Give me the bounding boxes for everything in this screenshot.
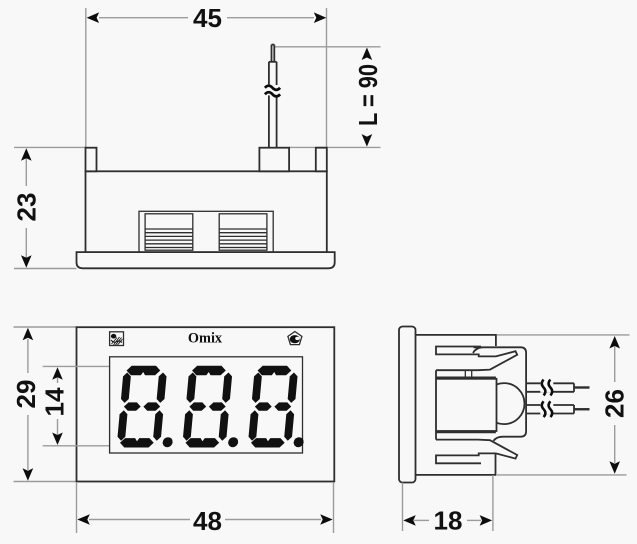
svg-text:14: 14: [40, 387, 70, 416]
svg-text:L = 90: L = 90: [353, 64, 383, 126]
svg-text:18: 18: [434, 506, 463, 536]
svg-text:48: 48: [193, 506, 222, 536]
svg-text:Omix: Omix: [188, 330, 223, 346]
svg-text:29: 29: [11, 380, 41, 409]
svg-text:23: 23: [11, 193, 41, 222]
svg-text:26: 26: [600, 389, 630, 418]
svg-text:45: 45: [193, 3, 222, 33]
